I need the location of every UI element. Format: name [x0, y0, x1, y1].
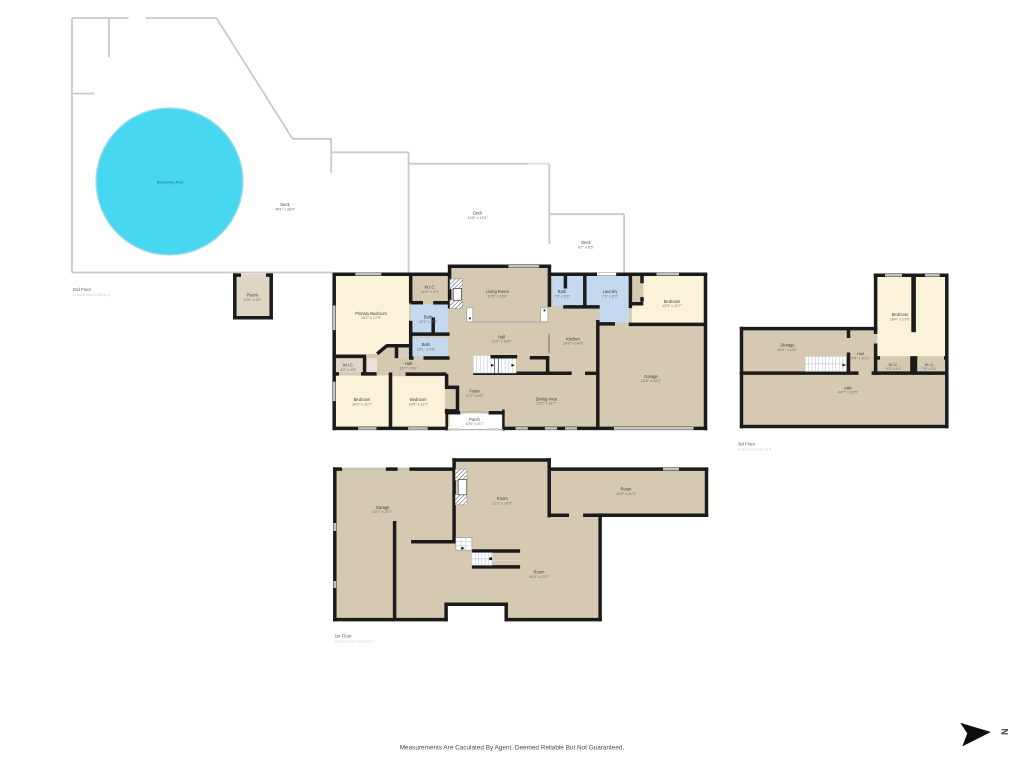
- svg-text:N: N: [1000, 729, 1010, 736]
- svg-text:6'0" x 4'5": 6'0" x 4'5": [340, 368, 357, 372]
- svg-text:20'7" x 20'7": 20'7" x 20'7": [372, 510, 393, 514]
- svg-text:16'7" x 5'4": 16'7" x 5'4": [400, 366, 419, 370]
- svg-text:Measurements Are Caculated By: Measurements Are Caculated By Agent. Dee…: [400, 745, 625, 752]
- svg-text:10'2" x 9'4": 10'2" x 9'4": [419, 320, 438, 324]
- svg-text:Hall: Hall: [857, 351, 864, 356]
- svg-text:10'1" x 4'6": 10'1" x 4'6": [417, 347, 436, 351]
- svg-text:Hall: Hall: [498, 334, 505, 339]
- svg-text:Kitchen: Kitchen: [566, 336, 580, 341]
- svg-text:Foyer: Foyer: [469, 389, 480, 394]
- svg-text:10'2" x 5'0": 10'2" x 5'0": [421, 290, 440, 294]
- svg-text:Bedroom: Bedroom: [892, 312, 909, 317]
- svg-text:1st Floor: 1st Floor: [335, 634, 353, 639]
- svg-text:7'6" x 3'4": 7'6" x 3'4": [922, 367, 938, 371]
- svg-text:7'6" x 6'3": 7'6" x 6'3": [602, 294, 619, 298]
- svg-text:Bedroom: Bedroom: [410, 397, 427, 402]
- svg-text:14'0" x 13'0": 14'0" x 13'0": [777, 348, 798, 352]
- svg-text:16'4" x 17'0": 16'4" x 17'0": [890, 317, 911, 321]
- svg-text:34'9" x 11'5": 34'9" x 11'5": [616, 492, 637, 496]
- svg-text:2nd Floor: 2nd Floor: [73, 287, 92, 292]
- svg-text:10'6" x 9'5": 10'6" x 9'5": [243, 298, 262, 302]
- svg-text:Room: Room: [534, 570, 546, 575]
- svg-text:10'1" x 11'7": 10'1" x 11'7": [352, 402, 373, 406]
- svg-text:13'5" x 16'0": 13'5" x 16'0": [491, 340, 512, 344]
- svg-text:Attic: Attic: [844, 385, 852, 390]
- svg-text:Living Room: Living Room: [486, 289, 509, 294]
- svg-text:24'8" x 23'2": 24'8" x 23'2": [641, 379, 662, 383]
- svg-text:Porch: Porch: [469, 417, 480, 422]
- svg-text:Hall: Hall: [405, 361, 412, 366]
- svg-text:Bath: Bath: [422, 342, 431, 347]
- svg-text:W.I.C.: W.I.C.: [424, 285, 435, 290]
- svg-text:Bath: Bath: [424, 315, 433, 320]
- svg-text:8'0" x 3'4": 8'0" x 3'4": [886, 367, 902, 371]
- svg-text:13'0" x 11'7": 13'0" x 11'7": [536, 402, 557, 406]
- svg-text:10'5" x 11'7": 10'5" x 11'7": [408, 402, 429, 406]
- svg-text:Deck: Deck: [581, 240, 591, 245]
- svg-text:13'2" x 11'7": 13'2" x 11'7": [662, 304, 683, 308]
- svg-text:Garage: Garage: [644, 374, 658, 379]
- svg-text:10'0" x 4'7": 10'0" x 4'7": [465, 422, 484, 426]
- svg-text:Room: Room: [247, 293, 259, 298]
- svg-text:Swimming Pool: Swimming Pool: [157, 179, 184, 184]
- svg-text:20'5" x 16'0": 20'5" x 16'0": [487, 294, 508, 298]
- svg-text:10'6" x 11'6": 10'6" x 11'6": [468, 216, 489, 220]
- svg-text:Storage: Storage: [780, 343, 795, 348]
- svg-text:Dining Area: Dining Area: [536, 396, 558, 401]
- svg-text:Deck: Deck: [280, 202, 290, 207]
- svg-text:8'7" x 6'5": 8'7" x 6'5": [578, 245, 595, 249]
- svg-text:Garage: Garage: [376, 505, 390, 510]
- svg-text:Room: Room: [497, 496, 509, 501]
- svg-text:10'8" x 14'0": 10'8" x 14'0": [563, 342, 584, 346]
- svg-text:Bath: Bath: [558, 289, 567, 294]
- svg-text:Laundry: Laundry: [603, 289, 619, 294]
- svg-text:7'6" x 6'0": 7'6" x 6'0": [554, 294, 571, 298]
- svg-text:Bedroom: Bedroom: [354, 397, 371, 402]
- svg-text:Primary Bedroom: Primary Bedroom: [355, 311, 387, 316]
- svg-text:Exterior Area 64 sq ft: Exterior Area 64 sq ft: [738, 448, 772, 452]
- svg-text:5'9" x 10'1": 5'9" x 10'1": [851, 356, 870, 360]
- svg-text:Bedroom: Bedroom: [664, 299, 681, 304]
- svg-text:44'7" x 16'5": 44'7" x 16'5": [838, 391, 859, 395]
- svg-text:3rd Floor: 3rd Floor: [738, 442, 756, 447]
- svg-text:Exterior Area 2024 sq ft: Exterior Area 2024 sq ft: [335, 640, 373, 644]
- svg-text:12'1" x 9'5": 12'1" x 9'5": [466, 394, 485, 398]
- svg-text:16'1" x 17'9": 16'1" x 17'9": [361, 316, 382, 320]
- svg-text:44'9" x 23'2": 44'9" x 23'2": [529, 575, 550, 579]
- svg-text:Room: Room: [621, 487, 633, 492]
- svg-text:11'2" x 19'5": 11'2" x 19'5": [492, 501, 513, 505]
- svg-text:45'1" x 38'4": 45'1" x 38'4": [275, 207, 296, 211]
- svg-text:Deck: Deck: [473, 211, 483, 216]
- svg-text:W.I.C.: W.I.C.: [343, 363, 354, 368]
- svg-text:Exterior Area 2158 sq ft: Exterior Area 2158 sq ft: [73, 293, 111, 297]
